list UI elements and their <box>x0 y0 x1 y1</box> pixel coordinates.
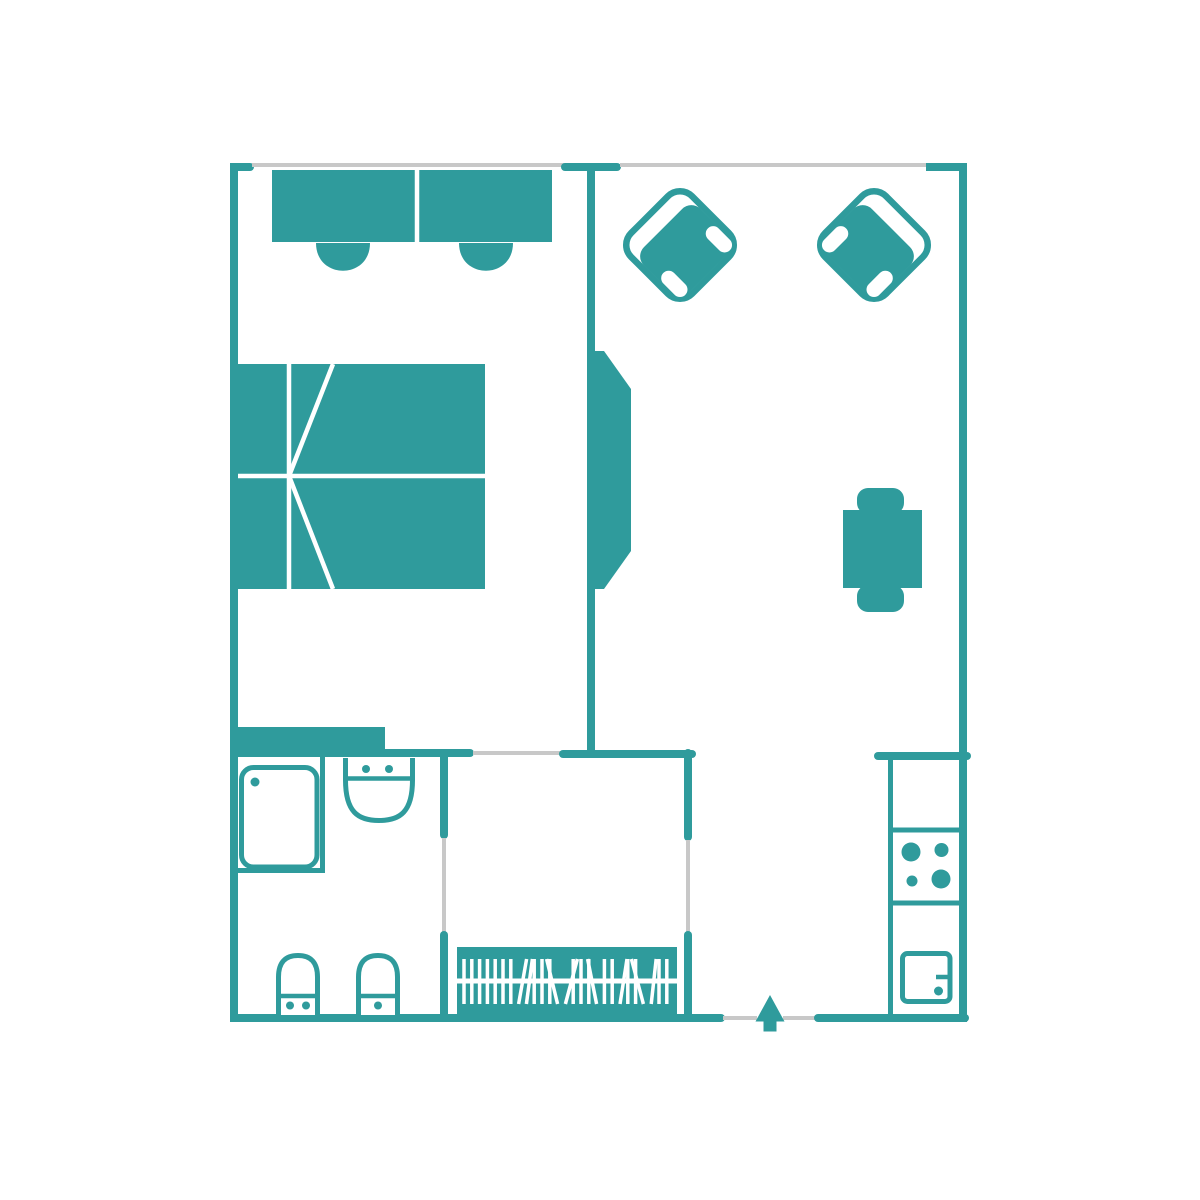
kitchen-drain-icon <box>934 987 943 996</box>
living-room <box>619 184 935 612</box>
burner-icon <box>902 843 921 862</box>
built-in-wardrobe <box>591 351 631 589</box>
kitchen <box>890 758 959 1015</box>
basin-tap-icon <box>362 765 370 773</box>
basin-tap-icon <box>385 765 393 773</box>
floor-plan-svg <box>0 0 1200 1200</box>
walk-in-closet <box>450 947 684 1015</box>
wash-basin <box>346 758 413 821</box>
shower-drain-icon <box>251 778 260 787</box>
burner-icon <box>935 843 949 857</box>
cooktop <box>902 843 951 889</box>
entrance <box>756 995 785 1032</box>
entry-arrow-icon <box>756 995 785 1032</box>
burner-icon <box>932 870 951 889</box>
desk-chair-icon <box>459 243 513 271</box>
bidet-drain-icon <box>374 1002 382 1010</box>
dining-table <box>843 510 922 588</box>
toilet-button-icon <box>286 1002 294 1010</box>
desk-chair-icon <box>316 243 370 271</box>
toilet <box>279 956 318 1016</box>
vanity-counter <box>238 727 385 757</box>
bedroom <box>238 170 631 589</box>
burner-icon <box>907 876 918 887</box>
armchair-left <box>619 184 741 306</box>
dining-chair-icon <box>857 585 904 612</box>
floor-plan-page <box>0 0 1200 1200</box>
toilet-button-icon <box>302 1002 310 1010</box>
bathroom <box>238 727 413 1015</box>
armchair-right <box>813 184 935 306</box>
desk <box>272 170 552 242</box>
